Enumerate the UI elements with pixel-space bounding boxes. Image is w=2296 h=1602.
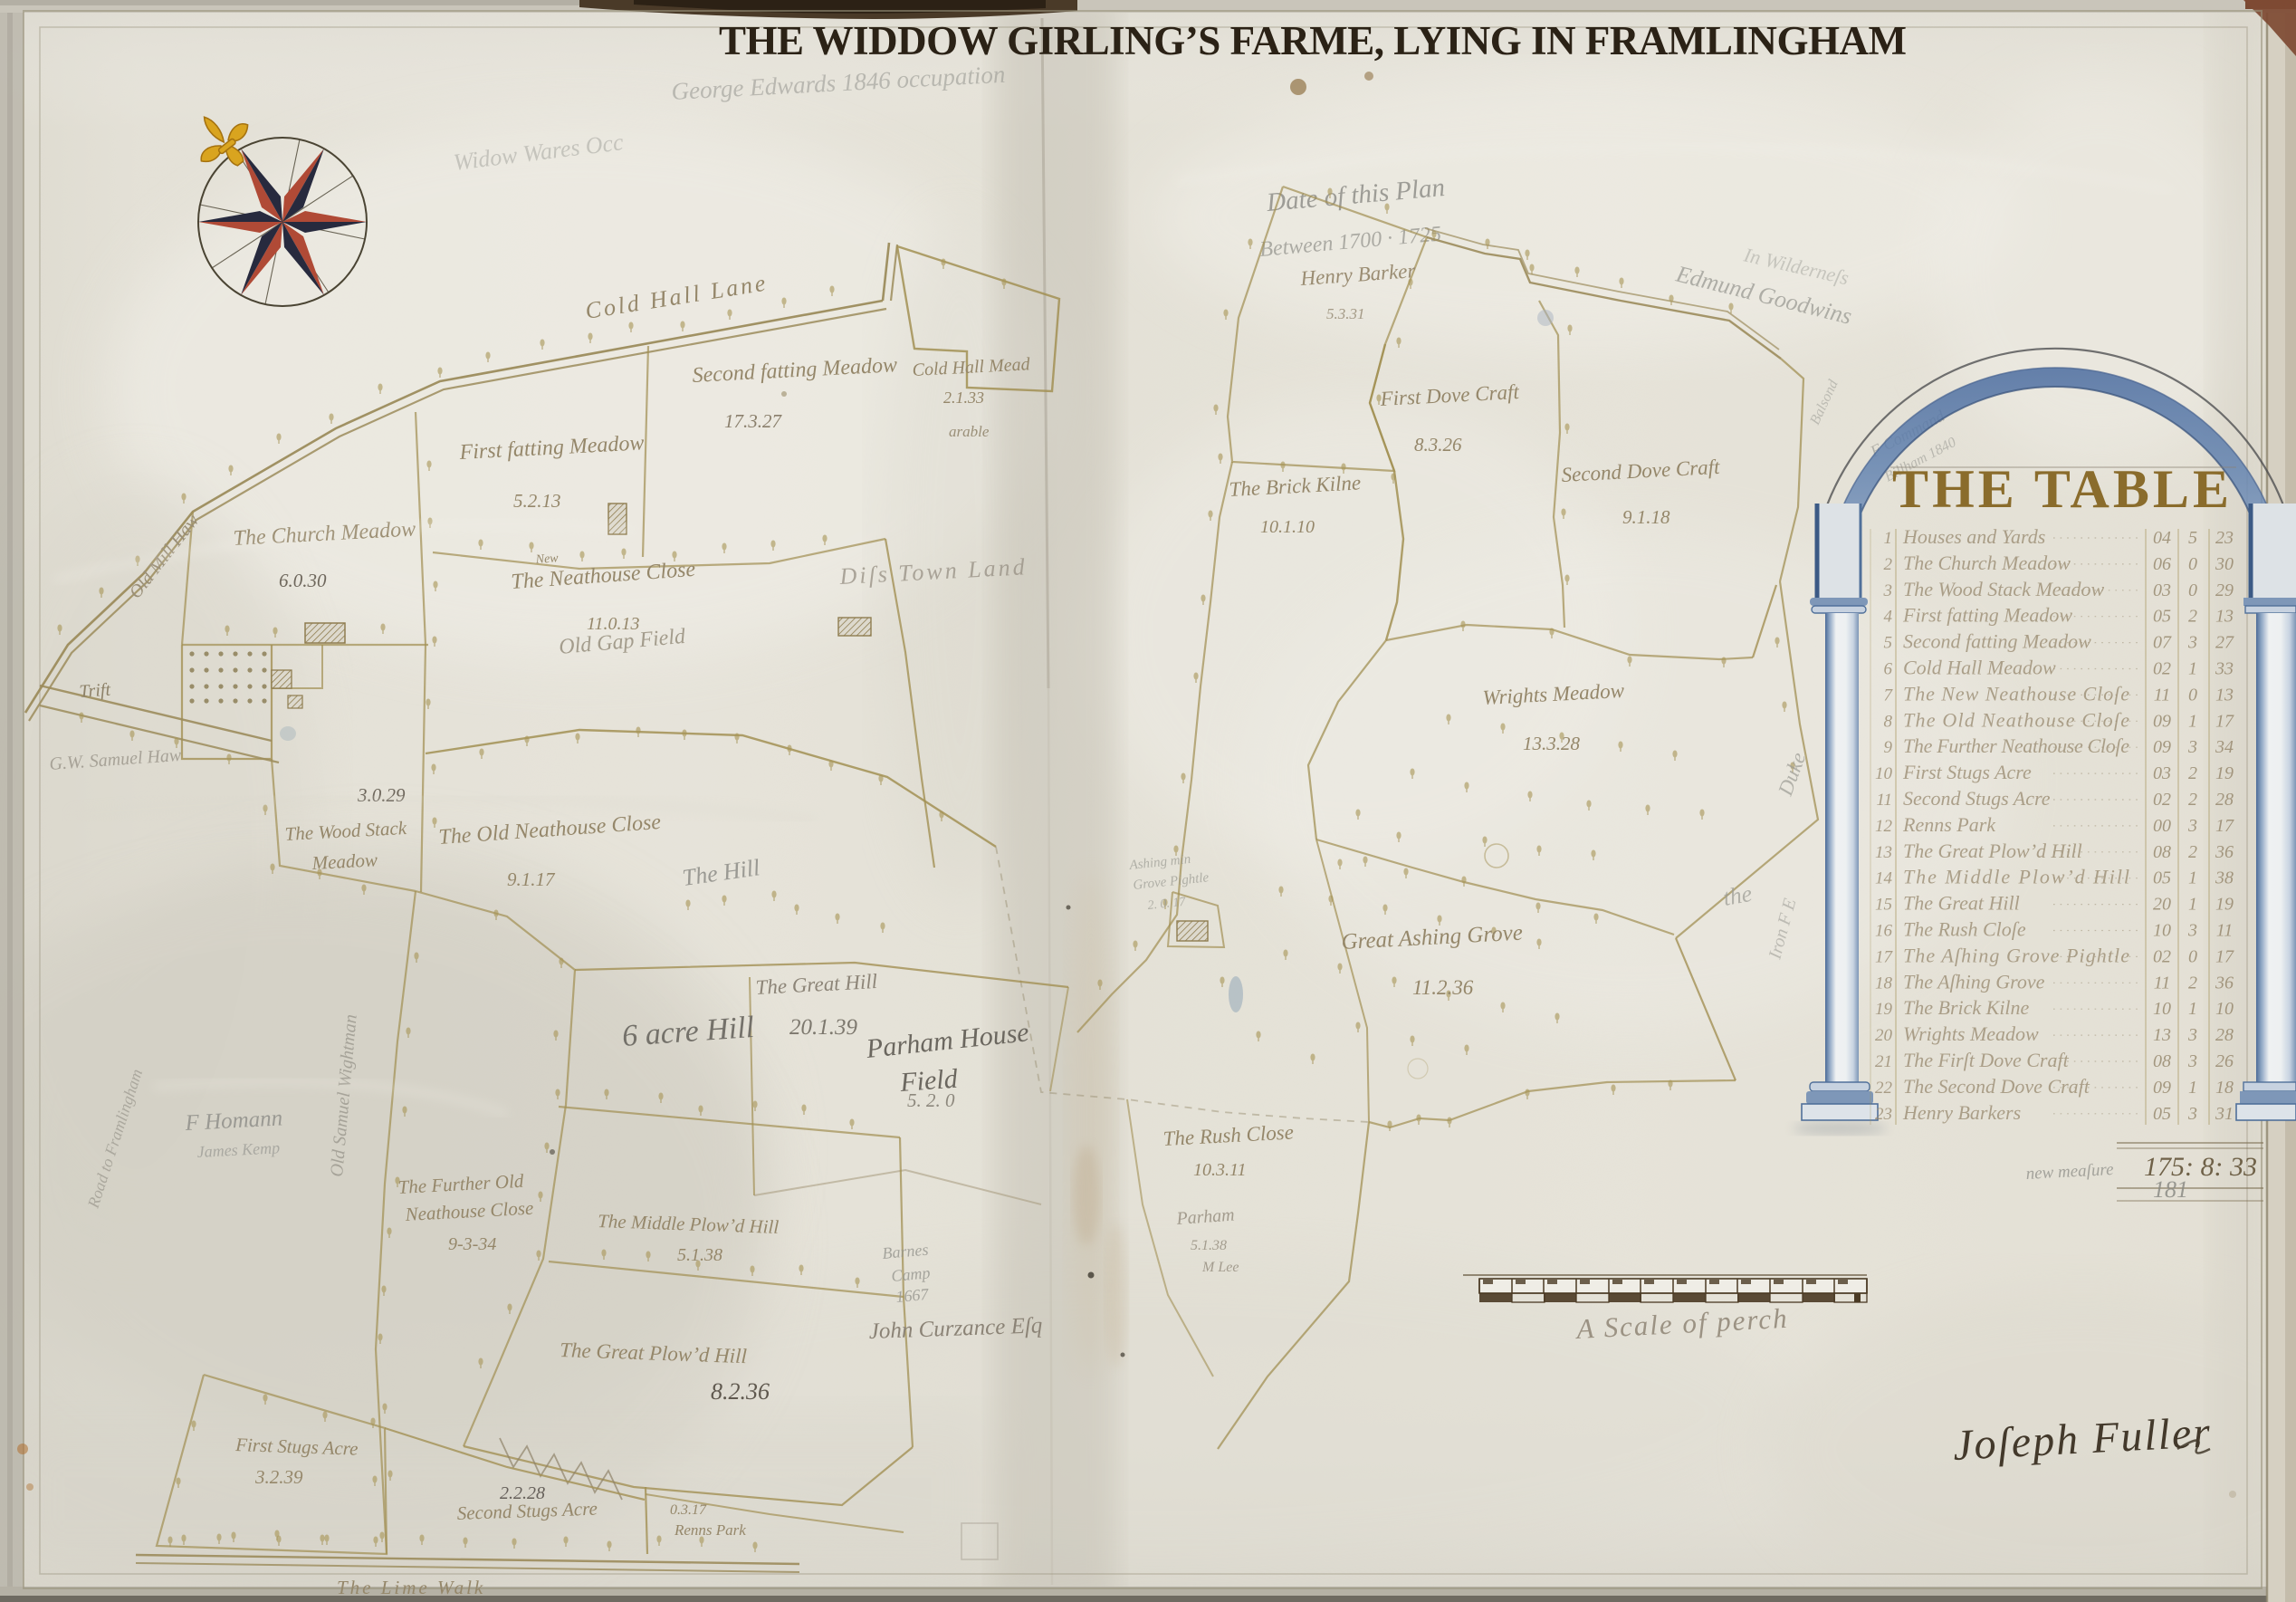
svg-text:3: 3 (2187, 1025, 2197, 1045)
svg-text:19: 19 (2215, 895, 2234, 915)
svg-text:11: 11 (2154, 685, 2171, 705)
svg-text:09: 09 (2153, 1078, 2171, 1098)
svg-text:20: 20 (2153, 895, 2171, 915)
svg-text:0: 0 (2188, 580, 2197, 600)
svg-text:5.2.13: 5.2.13 (513, 490, 561, 512)
svg-text:The Wood Stack Meadow: The Wood Stack Meadow (1903, 578, 2105, 600)
svg-text:THE TABLE: THE TABLE (1892, 459, 2234, 519)
svg-text:09: 09 (2153, 711, 2171, 731)
svg-text:The Great Plow’d Hill: The Great Plow’d Hill (1903, 839, 2082, 862)
svg-text:Renns Park: Renns Park (1902, 813, 1996, 836)
svg-text:F Homann: F Homann (184, 1106, 283, 1136)
svg-text:04: 04 (2153, 528, 2171, 548)
svg-text:17: 17 (2215, 816, 2234, 836)
svg-text:36: 36 (2215, 842, 2234, 862)
svg-text:6.0.30: 6.0.30 (279, 570, 327, 591)
svg-text:0: 0 (2188, 946, 2197, 966)
svg-text:28: 28 (2215, 790, 2234, 810)
svg-text:M Lee: M Lee (1201, 1260, 1239, 1275)
svg-text:9.1.18: 9.1.18 (1622, 506, 1670, 528)
svg-text:5: 5 (1884, 634, 1893, 653)
svg-text:02: 02 (2153, 946, 2171, 966)
svg-text:11.2.36: 11.2.36 (1412, 976, 1474, 999)
svg-text:5.1.38: 5.1.38 (677, 1245, 722, 1265)
svg-text:28: 28 (2215, 1025, 2234, 1045)
svg-text:5.3.31: 5.3.31 (1326, 305, 1365, 322)
svg-text:30: 30 (2215, 554, 2234, 574)
svg-text:8: 8 (1884, 712, 1893, 731)
svg-text:2.2.28: 2.2.28 (500, 1483, 545, 1503)
svg-text:0: 0 (2188, 685, 2197, 705)
svg-text:3: 3 (2187, 921, 2197, 941)
svg-text:5: 5 (2188, 528, 2197, 548)
svg-text:Renns Park: Renns Park (674, 1521, 746, 1539)
svg-text:8.3.26: 8.3.26 (1414, 434, 1462, 456)
svg-text:19: 19 (2215, 763, 2234, 783)
svg-text:00: 00 (2153, 816, 2171, 836)
svg-text:The Second Dove Craft: The Second Dove Craft (1903, 1075, 2090, 1098)
svg-text:31: 31 (2215, 1104, 2234, 1124)
svg-text:33: 33 (2215, 659, 2234, 679)
svg-text:38: 38 (2215, 868, 2234, 888)
svg-text:3: 3 (2187, 1104, 2197, 1124)
svg-text:0: 0 (2188, 554, 2197, 574)
svg-text:9-3-34: 9-3-34 (448, 1234, 496, 1254)
svg-text:05: 05 (2153, 1104, 2171, 1124)
svg-text:11: 11 (2154, 973, 2171, 993)
svg-text:13.3.28: 13.3.28 (1523, 733, 1581, 754)
svg-text:02: 02 (2153, 659, 2171, 679)
svg-text:2: 2 (2188, 607, 2197, 627)
svg-text:0.3.17: 0.3.17 (670, 1502, 707, 1518)
svg-text:2: 2 (2188, 763, 2197, 783)
svg-text:Cold Hall Meadow: Cold Hall Meadow (1903, 657, 2056, 679)
svg-text:10: 10 (1875, 764, 1893, 783)
svg-text:22: 22 (1875, 1079, 1893, 1098)
svg-text:13: 13 (2153, 1025, 2171, 1045)
svg-text:34: 34 (2215, 737, 2234, 757)
svg-text:14: 14 (1875, 869, 1893, 888)
svg-text:05: 05 (2153, 868, 2171, 888)
svg-text:15: 15 (1875, 896, 1892, 915)
svg-text:23: 23 (1875, 1105, 1892, 1124)
svg-text:THE WIDDOW GIRLING’S FARME, LY: THE WIDDOW GIRLING’S FARME, LYING IN FRA… (719, 18, 1910, 63)
svg-text:03: 03 (2153, 763, 2171, 783)
svg-text:18: 18 (1875, 974, 1893, 993)
svg-text:First Stugs Acre: First Stugs Acre (1902, 761, 2032, 783)
svg-text:29: 29 (2215, 580, 2234, 600)
svg-text:4: 4 (1884, 608, 1893, 627)
svg-text:181: 181 (2153, 1176, 2188, 1203)
svg-text:The Rush Cloſe: The Rush Cloſe (1903, 918, 2026, 941)
svg-text:3.0.29: 3.0.29 (357, 784, 406, 806)
svg-text:11: 11 (1876, 791, 1892, 810)
svg-text:08: 08 (2153, 842, 2171, 862)
svg-text:3: 3 (2187, 1051, 2197, 1071)
svg-text:2: 2 (1884, 555, 1893, 574)
svg-text:First fatting Meadow: First fatting Meadow (1902, 604, 2072, 627)
svg-text:New: New (534, 552, 560, 567)
svg-text:10: 10 (2153, 999, 2171, 1019)
svg-text:7: 7 (1884, 686, 1894, 705)
svg-text:36: 36 (2215, 973, 2234, 993)
svg-text:The Further Neathouse Cloſe: The Further Neathouse Cloſe (1903, 734, 2129, 757)
svg-text:2.1.33: 2.1.33 (943, 389, 984, 407)
svg-text:The Lime Walk: The Lime Walk (337, 1577, 485, 1598)
svg-text:10: 10 (2153, 921, 2171, 941)
svg-text:3: 3 (2187, 737, 2197, 757)
svg-text:Camp: Camp (891, 1263, 932, 1285)
svg-text:Second fatting Meadow: Second fatting Meadow (1903, 630, 2091, 653)
svg-text:09: 09 (2153, 737, 2171, 757)
svg-text:10.1.10: 10.1.10 (1260, 517, 1315, 537)
svg-text:Meadow: Meadow (311, 849, 378, 874)
svg-text:1: 1 (2188, 868, 2197, 888)
svg-text:08: 08 (2153, 1051, 2171, 1071)
svg-text:5.1.38: 5.1.38 (1191, 1238, 1227, 1253)
svg-text:Parham: Parham (1175, 1205, 1235, 1229)
svg-text:1: 1 (2188, 711, 2197, 731)
svg-text:9.1.17: 9.1.17 (507, 868, 556, 890)
svg-text:First Stugs Acre: First Stugs Acre (234, 1434, 359, 1460)
svg-text:The New Neathouse Cloſe: The New Neathouse Cloſe (1903, 682, 2129, 705)
svg-text:arable: arable (949, 423, 990, 440)
svg-text:2: 2 (2188, 790, 2197, 810)
svg-text:18: 18 (2215, 1078, 2234, 1098)
svg-text:3: 3 (2187, 633, 2197, 653)
svg-text:02: 02 (2153, 790, 2171, 810)
svg-text:16: 16 (1875, 922, 1893, 941)
svg-text:17.3.27: 17.3.27 (724, 410, 783, 432)
svg-text:12: 12 (1875, 817, 1893, 836)
svg-text:6: 6 (1884, 660, 1893, 679)
svg-text:Houses and Yards: Houses and Yards (1902, 525, 2045, 548)
svg-text:20.1.39: 20.1.39 (789, 1015, 858, 1040)
svg-text:5. 2. 0: 5. 2. 0 (907, 1089, 955, 1111)
svg-text:10: 10 (2215, 999, 2234, 1019)
svg-text:17: 17 (2215, 711, 2234, 731)
svg-text:13: 13 (1875, 843, 1892, 862)
svg-text:The Firſt Dove Craft: The Firſt Dove Craft (1903, 1049, 2070, 1071)
svg-text:20: 20 (1875, 1026, 1893, 1045)
svg-text:3: 3 (1883, 581, 1893, 600)
svg-text:3.2.39: 3.2.39 (254, 1466, 303, 1488)
svg-text:Wrights Meadow: Wrights Meadow (1903, 1022, 2039, 1045)
svg-text:13: 13 (2215, 685, 2234, 705)
svg-text:9: 9 (1884, 738, 1893, 757)
svg-text:1: 1 (2188, 1078, 2197, 1098)
svg-text:The Aſhing Grove Pightle: The Aſhing Grove Pightle (1903, 944, 2129, 966)
svg-text:17: 17 (1875, 947, 1894, 966)
svg-text:The Aſhing Grove: The Aſhing Grove (1903, 970, 2045, 993)
svg-text:11: 11 (2216, 921, 2234, 941)
svg-text:the: the (1721, 880, 1754, 911)
svg-text:19: 19 (1875, 1000, 1893, 1019)
svg-text:2: 2 (2188, 842, 2197, 862)
svg-text:The Brick Kilne: The Brick Kilne (1903, 996, 2030, 1019)
svg-text:21: 21 (1875, 1052, 1892, 1071)
svg-text:27: 27 (2215, 633, 2234, 653)
svg-text:13: 13 (2215, 607, 2234, 627)
svg-text:1: 1 (2188, 999, 2197, 1019)
svg-text:07: 07 (2153, 633, 2172, 653)
svg-text:Henry Barkers: Henry Barkers (1902, 1101, 2021, 1124)
svg-text:8.2.36: 8.2.36 (711, 1378, 770, 1405)
svg-text:03: 03 (2153, 580, 2171, 600)
svg-text:05: 05 (2153, 607, 2171, 627)
svg-text:26: 26 (2215, 1051, 2234, 1071)
svg-text:10.3.11: 10.3.11 (1193, 1160, 1247, 1180)
svg-text:3: 3 (2187, 816, 2197, 836)
svg-text:06: 06 (2153, 554, 2171, 574)
svg-text:The Great Hill: The Great Hill (1903, 892, 2020, 915)
svg-text:The Church Meadow: The Church Meadow (1903, 552, 2071, 574)
svg-text:1: 1 (2188, 895, 2197, 915)
svg-text:The Old Neathouse Cloſe: The Old Neathouse Cloſe (1903, 708, 2129, 731)
svg-text:Second Stugs Acre: Second Stugs Acre (1903, 787, 2051, 810)
svg-text:1: 1 (2188, 659, 2197, 679)
svg-text:Trift: Trift (79, 680, 111, 702)
svg-text:1667: 1667 (895, 1285, 931, 1306)
svg-text:2: 2 (2188, 973, 2197, 993)
svg-text:23: 23 (2215, 528, 2234, 548)
svg-text:17: 17 (2215, 946, 2234, 966)
svg-text:1: 1 (1884, 529, 1893, 548)
